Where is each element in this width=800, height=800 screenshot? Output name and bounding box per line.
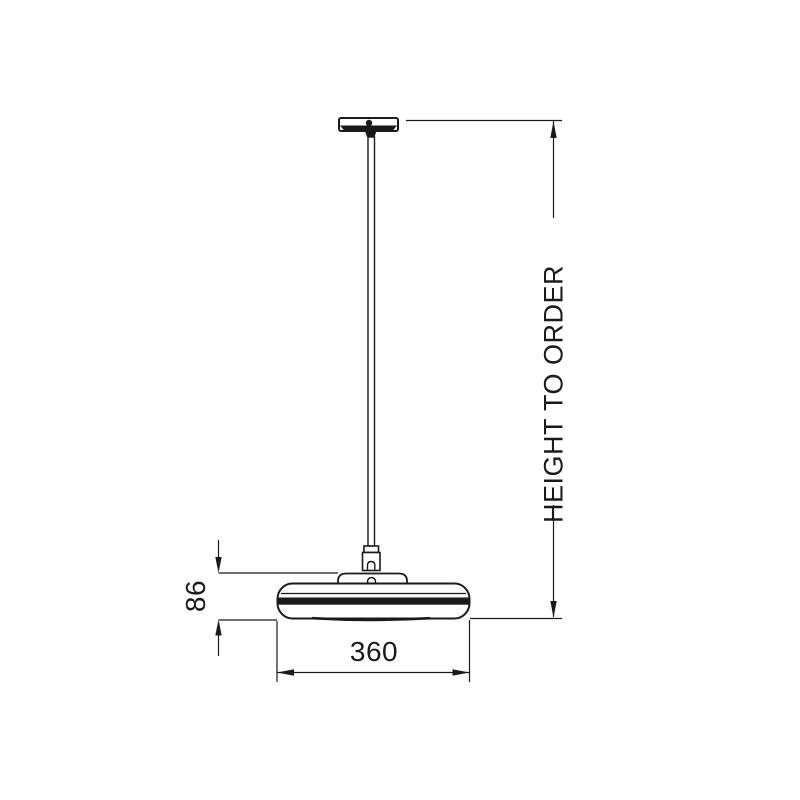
lamp-shade (278, 584, 470, 620)
ceiling-canopy (339, 118, 398, 137)
pendant-lamp-line-drawing (0, 0, 800, 800)
height-to-order-label: HEIGHT TO ORDER (539, 265, 570, 523)
shade-width-label: 360 (350, 636, 398, 668)
shade-band (278, 598, 469, 605)
arrow-up-icon (550, 121, 556, 138)
arrow-down-icon (550, 601, 556, 618)
arrow-up-icon (215, 620, 221, 636)
shade-height-label: 86 (180, 580, 212, 612)
technical-drawing-canvas: HEIGHT TO ORDER 86 360 (0, 0, 800, 800)
suspension-rod (368, 137, 375, 546)
arrow-down-icon (215, 557, 221, 573)
rod-connector (363, 546, 381, 571)
canopy-neck (365, 131, 377, 137)
canopy-bevel (340, 126, 397, 132)
canopy-screw-icon (366, 120, 372, 126)
arrow-left-icon (277, 669, 294, 675)
arrow-right-icon (453, 669, 470, 675)
